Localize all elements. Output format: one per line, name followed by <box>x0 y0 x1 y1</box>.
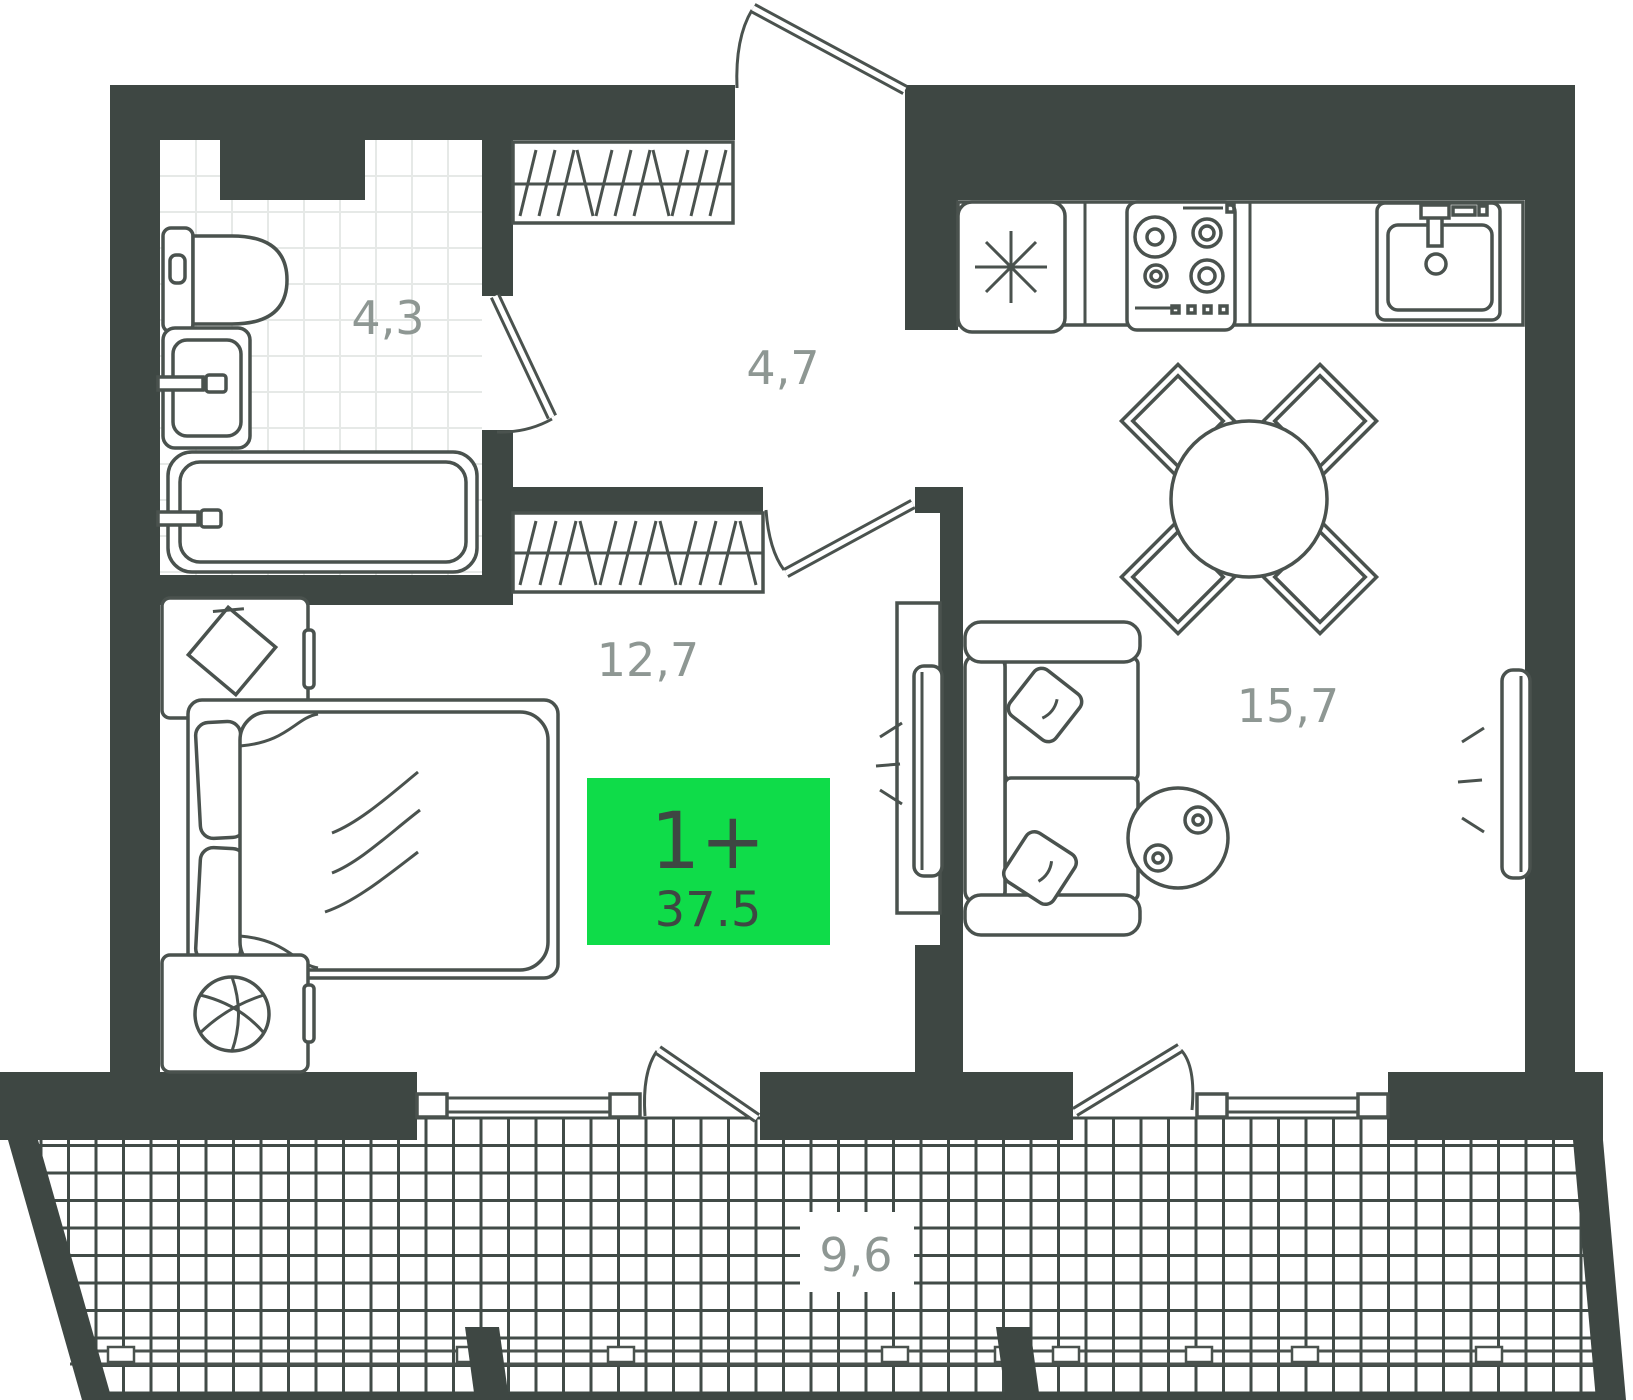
floor-plan: 4,3 4,7 12,7 15,7 9,6 1+ 37.5 <box>0 0 1633 1400</box>
bedroom-door <box>766 504 913 573</box>
bedroom-area-label: 12,7 <box>597 633 699 687</box>
wardrobe-lower <box>513 513 763 592</box>
balcony-area-label-group: 9,6 <box>800 1212 914 1292</box>
living-balcony-door <box>1075 1048 1193 1112</box>
railing-post <box>608 1347 634 1362</box>
bathroom-door <box>495 296 552 432</box>
wall-top-left <box>110 85 735 140</box>
vent-shaft <box>220 140 365 200</box>
wardrobe-top <box>513 142 733 223</box>
badge-area-value: 37.5 <box>655 882 762 938</box>
bathroom-sink <box>158 328 250 448</box>
coffee-table <box>1128 788 1228 888</box>
wall-wardrobe-header <box>500 487 763 513</box>
railing-post <box>882 1347 908 1362</box>
railing-post <box>1186 1347 1212 1362</box>
nightstand-bottom <box>162 955 314 1072</box>
railing-post <box>1292 1347 1318 1362</box>
dining-set <box>1121 364 1376 633</box>
stove <box>1127 202 1235 330</box>
railing-post <box>108 1347 134 1362</box>
wall-bottom-left <box>0 1072 417 1140</box>
sofa-armrest <box>965 622 1140 662</box>
wall-top-right <box>905 85 1575 140</box>
wall-bottom-right <box>1388 1072 1603 1140</box>
floor-plan-canvas: 4,3 4,7 12,7 15,7 9,6 1+ 37.5 <box>0 0 1633 1400</box>
wall-bathroom-upper <box>482 140 513 296</box>
badge-room-count: 1+ <box>651 797 766 887</box>
wall-right <box>1525 85 1575 1080</box>
duvet <box>240 712 548 970</box>
wall-bottom-middle <box>760 1072 1073 1140</box>
tv-signal-icon <box>1458 728 1484 832</box>
sofa <box>965 622 1140 935</box>
kitchen-bulkhead <box>905 140 1525 200</box>
living-area-label: 15,7 <box>1237 679 1339 733</box>
living-window <box>1197 1094 1388 1117</box>
fridge <box>958 202 1065 332</box>
wall-bedroom-living-pier <box>915 945 963 1075</box>
sofa-backrest <box>965 655 1005 903</box>
tv-bedroom <box>876 666 942 876</box>
railing-post <box>1053 1347 1079 1362</box>
hallway-area-label: 4,7 <box>746 341 819 395</box>
balcony-area-label: 9,6 <box>819 1228 892 1282</box>
dining-table <box>1171 421 1327 577</box>
apartment-badge: 1+ 37.5 <box>587 778 830 945</box>
kitchen-sink <box>1377 203 1500 320</box>
bedroom-balcony-door <box>645 1050 758 1118</box>
entrance-door <box>737 8 905 90</box>
tv-living <box>1458 670 1530 878</box>
toilet <box>163 228 287 332</box>
fan-icon <box>195 977 269 1051</box>
bathroom-area-label: 4,3 <box>351 291 424 345</box>
bed <box>188 700 558 978</box>
bedroom-window <box>417 1094 640 1117</box>
railing-post <box>1476 1347 1502 1362</box>
bathtub <box>158 452 477 572</box>
wall-hall-kitchen <box>905 140 958 330</box>
